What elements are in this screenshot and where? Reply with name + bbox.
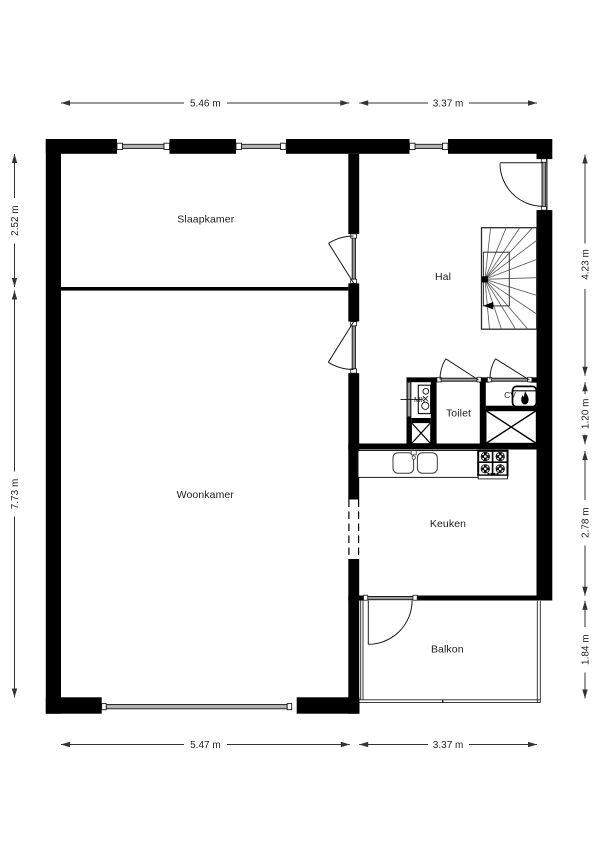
svg-text:Hal: Hal: [435, 271, 451, 283]
svg-text:MK: MK: [414, 395, 425, 404]
svg-text:1.20 m: 1.20 m: [581, 399, 592, 430]
svg-text:Balkon: Balkon: [431, 643, 464, 655]
svg-text:Keuken: Keuken: [430, 518, 466, 530]
svg-text:CV: CV: [504, 390, 516, 400]
svg-text:2.52 m: 2.52 m: [10, 205, 21, 236]
svg-text:2.78 m: 2.78 m: [581, 507, 592, 538]
svg-text:5.47 m: 5.47 m: [190, 740, 221, 751]
svg-text:3.37 m: 3.37 m: [433, 740, 464, 751]
svg-text:Slaapkamer: Slaapkamer: [177, 214, 234, 226]
svg-text:4.23 m: 4.23 m: [581, 249, 592, 280]
svg-text:7.73 m: 7.73 m: [10, 479, 21, 510]
svg-text:3.37 m: 3.37 m: [433, 99, 464, 110]
svg-text:Toilet: Toilet: [446, 408, 471, 420]
svg-text:5.46 m: 5.46 m: [190, 99, 221, 110]
svg-text:Woonkamer: Woonkamer: [177, 489, 235, 501]
svg-text:1.84 m: 1.84 m: [581, 634, 592, 665]
